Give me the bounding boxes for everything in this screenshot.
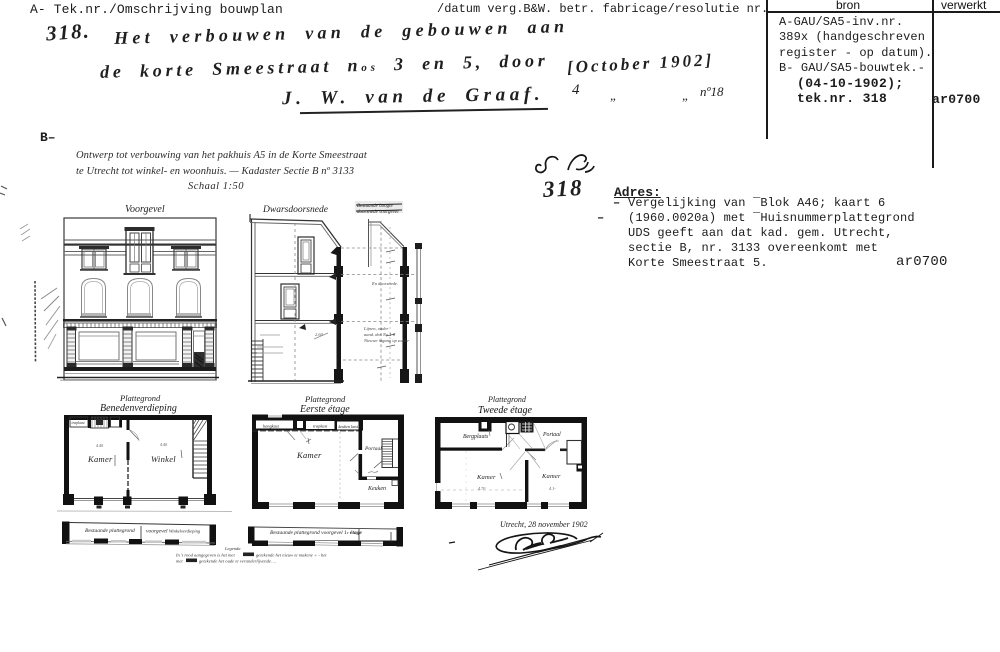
svg-text:Kamer: Kamer bbox=[476, 474, 496, 481]
svg-text:Bestaande plattegrond voorge: Bestaande plattegrond voorgevel 1e étage bbox=[270, 530, 362, 536]
svg-text:Nieuwe ingang op zolder: Nieuwe ingang op zolder bbox=[363, 338, 409, 343]
svg-text:Bergplaats: Bergplaats bbox=[463, 434, 489, 440]
svg-text:4.40: 4.40 bbox=[96, 443, 103, 448]
svg-text:Winkel: Winkel bbox=[151, 454, 176, 464]
svg-text:voorgevel Winkelverdieping: voorgevel Winkelverdieping bbox=[146, 529, 201, 535]
svg-text:Plattegrond: Plattegrond bbox=[304, 394, 346, 404]
svg-text:Benedenverdieping: Benedenverdieping bbox=[100, 403, 177, 414]
svg-text:Bestaande plattegrond: Bestaande plattegrond bbox=[85, 528, 135, 534]
svg-text:Kamer: Kamer bbox=[87, 454, 113, 464]
svg-text:En doorsnede.: En doorsnede. bbox=[371, 281, 398, 286]
svg-text:Plattegrond: Plattegrond bbox=[487, 395, 527, 404]
svg-text:Voorgevel: Voorgevel bbox=[125, 204, 165, 215]
svg-text:4.40: 4.40 bbox=[160, 442, 167, 447]
svg-text:Keuken: Keuken bbox=[367, 486, 386, 492]
svg-text:Dwarsdoorsnede: Dwarsdoorsnede bbox=[262, 205, 328, 215]
svg-text:In 't rood aangegeven is het m: In 't rood aangegeven is het met bbox=[175, 553, 235, 558]
svg-text:Portaal: Portaal bbox=[364, 446, 382, 452]
svg-text:met: met bbox=[176, 559, 183, 564]
svg-text:Tweede étage: Tweede étage bbox=[478, 405, 533, 416]
svg-text:trapkast: trapkast bbox=[72, 420, 86, 425]
svg-text:hangkast: hangkast bbox=[263, 423, 280, 428]
svg-text:getekende het nieuw te makene: getekende het nieuw te makene + - het bbox=[256, 553, 327, 558]
svg-text:Utrecht, 28 november 1902: Utrecht, 28 november 1902 bbox=[500, 520, 588, 529]
svg-text:Kamer: Kamer bbox=[541, 473, 561, 480]
svg-text:Legenda: Legenda bbox=[224, 546, 241, 551]
svg-text:Portaal: Portaal bbox=[542, 432, 561, 438]
svg-text:Eerste étage: Eerste étage bbox=[299, 404, 350, 415]
svg-text:4.1-: 4.1- bbox=[549, 486, 556, 491]
svg-text:keuken kast: keuken kast bbox=[339, 424, 359, 429]
svg-text:aand. den No 1-8: aand. den No 1-8 bbox=[364, 332, 396, 337]
svg-text:getekende het oude te verander: getekende het oude te veranderlijvende. … bbox=[199, 559, 277, 564]
svg-text:Plattegrond: Plattegrond bbox=[119, 393, 161, 403]
svg-text:trapkast: trapkast bbox=[313, 424, 328, 429]
svg-text:2.60: 2.60 bbox=[315, 332, 324, 337]
svg-text:Kamer: Kamer bbox=[296, 450, 322, 460]
